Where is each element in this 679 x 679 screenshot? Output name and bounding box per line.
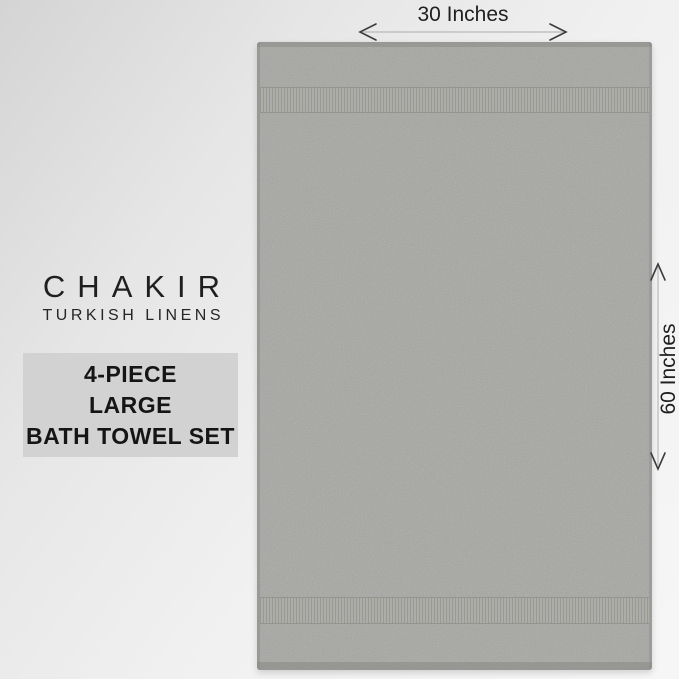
product-title-line-3: BATH TOWEL SET <box>23 421 238 452</box>
product-title-line-2: LARGE <box>23 390 238 421</box>
brand-name: CHAKIR <box>23 270 240 304</box>
height-dimension-label: 60 Inches <box>657 258 679 480</box>
brand-tagline: TURKISH LINENS <box>23 307 240 325</box>
towel-texture <box>257 42 652 670</box>
brand-logo: CHAKIR TURKISH LINENS <box>23 270 240 325</box>
product-image: 30 Inches <box>0 0 679 679</box>
product-title-line-1: 4-PIECE <box>23 359 238 390</box>
product-title-box: 4-PIECE LARGE BATH TOWEL SET <box>23 353 238 457</box>
towel-photo <box>257 42 652 670</box>
